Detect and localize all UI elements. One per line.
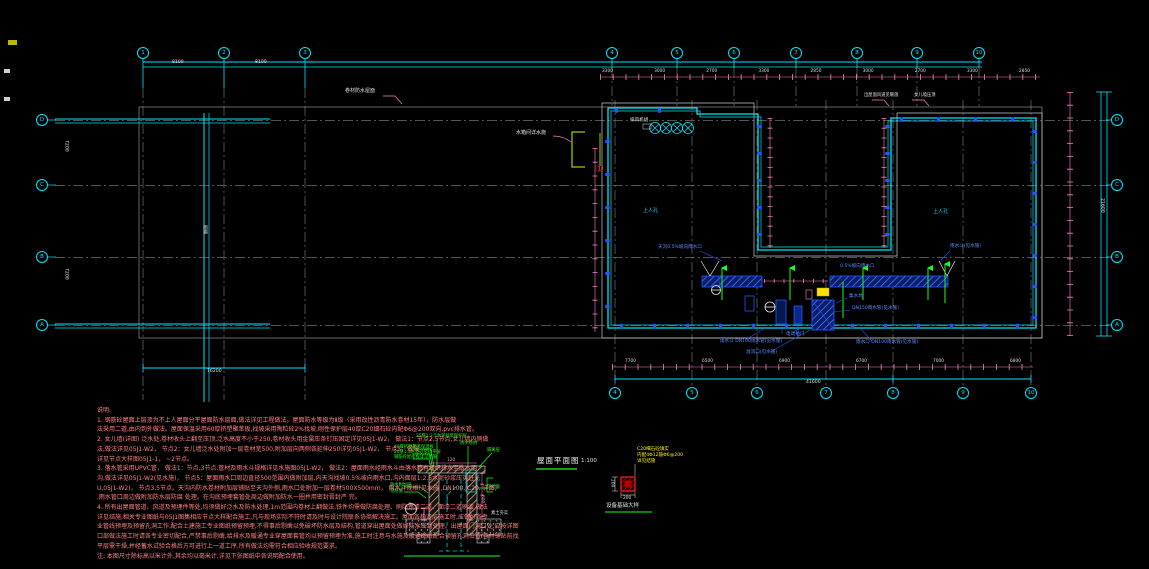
grid-bubble-bottom-7: 7 — [820, 387, 832, 399]
note-line: 法,做法详见05J1-W2， 节点2：女儿墙泛水处附加一层卷材宽500,附加层向… — [97, 445, 442, 455]
d1-top-label-3: 隔离层 — [487, 449, 500, 453]
grid-bubble-top-5: 5 — [671, 47, 683, 59]
dim-right-total: 21600 — [1099, 198, 1104, 213]
section-mark: ① — [595, 165, 604, 175]
grid-bubble-top-9: 9 — [911, 47, 923, 59]
notes-block: 说明: 1. 钢筋砼屋面上层顶为不上人屋面分平屋面防水层面,做法详见工程做法。屋… — [97, 406, 442, 561]
grid-bubble-left-d: D — [36, 114, 48, 126]
roof-access-label-1: 上人孔 — [643, 209, 658, 214]
grid-bubble-left-a: A — [36, 319, 48, 331]
d1-right-label-2: 素土夯实 — [491, 512, 508, 516]
grid-bubble-top-2: 2 — [218, 47, 230, 59]
d2-dim-w: 200 — [623, 497, 631, 501]
overflow-label: 溢流口(见水施) — [746, 351, 777, 356]
dim-topleft-b: 8100 — [255, 61, 267, 66]
d2-note-1: C20细石砼填实 — [637, 448, 669, 453]
grid-bubble-right-a: A — [1111, 319, 1123, 331]
plan-title: 屋面平面图 — [537, 455, 580, 466]
canopy-label: 雨棚 — [202, 225, 207, 234]
grid-bubble-left-b: B — [36, 251, 48, 263]
note-line: ,雨水管口周边做附加防水层防腐 处理。在沟底预埋套管处周边做附加防水一圈并用密封… — [97, 493, 442, 503]
plan-scale: 1:100 — [581, 458, 597, 464]
grid-bubble-bottom-5: 5 — [686, 387, 698, 399]
hopper-bottom-left-label: 雨水斗 DN100雨水管(见水施) — [720, 340, 782, 345]
water-tank-label: 水箱间详水施 — [516, 131, 546, 136]
dim-row-bottom: 770065006900 670070006800 — [625, 359, 1021, 364]
dim-topleft-a: 8100 — [172, 61, 184, 66]
rain-pipe-150-label: DN150雨水管(见水施) — [852, 307, 899, 312]
note-line: 法采用二道,由内到外做法。屋面保温采用60厚挤塑聚苯板,找坡采用陶粒砼2%找坡,… — [97, 425, 442, 435]
gutter-left-label: 天沟0.5%坡向雨水口 — [658, 246, 702, 251]
dim-canopy-a: 7200 — [63, 140, 68, 152]
note-line: 详见结施,相关专业图纸与05J1图集相应节点大样配合施工,凡与现场实际不符时请及… — [97, 513, 442, 523]
note-line: 业管线预埋及预留孔洞工作,配合土建施工专业图纸预留预埋,不得事后剔凿以免破坏防水… — [97, 522, 442, 532]
slope-label: 0.5%坡向雨水口 — [840, 265, 875, 270]
flap-gate-label: 电动拍门 — [786, 333, 804, 338]
note-line: 平层需干燥,并经蓄水试验合格后方可进行上一道工序,所有做法均需符合相应验收规范要… — [97, 542, 442, 552]
dim-row-top: 330030002700 330028503000 270033002850 — [602, 69, 1030, 74]
roof-vent-label: 出屋面风道见暖施 — [864, 94, 898, 98]
grid-bubble-top-8: 8 — [851, 47, 863, 59]
roof-membrane-label: 卷材防水屋面 — [345, 89, 375, 94]
d2-note-2: 内配4Φ12箍Φ6@200 — [637, 454, 683, 459]
dim-canopy-b: 7200 — [63, 268, 68, 280]
sump-pit-label: 集水坑 — [849, 295, 863, 300]
grid-bubble-top-7: 7 — [790, 47, 802, 59]
parapet-coping-label: 女儿墙压顶 — [914, 94, 935, 98]
rain-hopper-right-label: 雨水斗(见水施) — [950, 245, 981, 250]
note-line: 注: 本图尺寸除标高以米计外,其余均以毫米计,详见下张图纸中各说明配合使用。 — [97, 552, 442, 562]
note-line: U,05J1-W2)， 节点3,5节点。天沟内防水卷材附加层铺贴至天沟外侧,雨水… — [97, 484, 442, 494]
notes-heading: 说明: — [97, 406, 442, 416]
d2-note-3: 详见结施 — [637, 460, 655, 465]
grid-bubble-top-6: 6 — [728, 47, 740, 59]
dim-bottom-total: 41600 — [806, 381, 821, 386]
grid-bubble-top-4: 4 — [606, 47, 618, 59]
note-line: 2. 女儿墙(详图) 泛水处,卷材收头上翻至压顶,泛水高度不小于250,卷材收头… — [97, 435, 442, 445]
grid-bubble-left-c: C — [36, 179, 48, 191]
grid-bubble-bottom-4: 4 — [609, 387, 621, 399]
grid-bubble-right-d: D — [1111, 114, 1123, 126]
grid-bubble-bottom-6: 6 — [751, 387, 763, 399]
d2-title: 设备基础大样 — [606, 504, 639, 510]
d1-dim-h: 120 — [447, 459, 455, 463]
dim-left-total: 16200 — [207, 370, 222, 375]
grid-bubble-right-b: B — [1111, 251, 1123, 263]
grid-bubble-bottom-10: 10 — [1025, 387, 1037, 399]
grid-bubble-bottom-8: 8 — [887, 387, 899, 399]
cad-canvas: 1 2 3 4 5 6 7 8 9 10 4 5 6 7 8 9 10 D C … — [0, 0, 1149, 569]
grid-bubble-top-3: 3 — [299, 47, 311, 59]
d2-dim-h: 200 — [609, 479, 613, 487]
grid-bubble-bottom-9: 9 — [957, 387, 969, 399]
note-line: 4. 所有出屋面管道、风道及预埋件等处,均须做好泛水及防水处理,1m范围内卷材上… — [97, 503, 442, 513]
exhaust-fan-label: 排风机组 — [630, 119, 648, 124]
grid-bubble-right-c: C — [1111, 179, 1123, 191]
grid-bubble-top-1: 1 — [137, 47, 149, 59]
note-line: 沟,做法详见05J1-W2(见水施)， 节点5：屋面雨水口周边直径500范围内做… — [97, 474, 442, 484]
roof-access-label-2: 上人孔 — [933, 210, 948, 215]
d1-dim-v: 600 — [479, 495, 483, 503]
note-line: 1. 钢筋砼屋面上层顶为不上人屋面分平屋面防水层面,做法详见工程做法。屋面防水等… — [97, 416, 442, 426]
hopper-bottom-right-label: 雨水口 DN100雨水管(见水施) — [856, 341, 918, 346]
note-line: 口部做法施工时请各专业密切配合,严禁事后剔凿,给排水及暖通专业穿屋面套管均以预留… — [97, 532, 442, 542]
grid-bubble-top-10: 10 — [973, 47, 985, 59]
note-line: 3. 落水管采用UPVC管， 做法1：节点,3节点,管材及雨水斗规格详见水施图0… — [97, 464, 442, 474]
note-line: 详见节点大样图05J1-1， ~2节点。 — [97, 455, 442, 465]
